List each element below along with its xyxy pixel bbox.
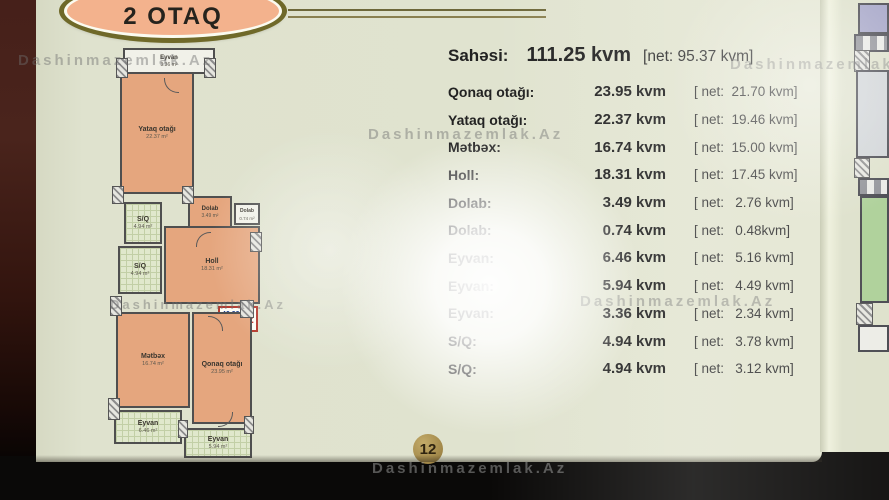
summary-label: Sahəsi: — [448, 46, 508, 66]
brochure-page: 2 OTAQ Eyvan 3.36 m² Yataq otağı 22.37 m… — [36, 0, 822, 462]
table-row: S/Q: 4.94 kvm [ net: 3.12 kvm] — [448, 355, 800, 383]
watermark: Dashinmazemlak.Az — [18, 52, 213, 69]
wall-hatch — [250, 232, 262, 252]
next-page-room — [858, 3, 889, 34]
table-row: Eyvan: 6.46 kvm [ net: 5.16 kvm] — [448, 244, 800, 272]
wall-hatch — [108, 398, 120, 420]
photo-of-brochure-page: 2 OTAQ Eyvan 3.36 m² Yataq otağı 22.37 m… — [0, 0, 889, 500]
door-arc — [218, 412, 233, 427]
next-page-wall-detail — [858, 178, 889, 196]
decorative-rule — [288, 9, 546, 11]
table-row: Dolab: 3.49 kvm [ net: 2.76 kvm] — [448, 189, 800, 217]
floorplan-room-sq-1: S/Q 4.94 m² — [124, 202, 162, 244]
summary-value: 111.25 kvm — [526, 44, 631, 67]
title-badge: 2 OTAQ — [64, 0, 282, 38]
next-page-room — [860, 196, 889, 303]
watermark: Dashinmazemlak.Az — [110, 297, 286, 312]
next-page-room — [856, 70, 889, 158]
wall-hatch — [854, 158, 870, 178]
area-table: Sahəsi: 111.25 kvm [net: 95.37 kvm] Qona… — [448, 44, 800, 383]
table-row: Qonaq otağı: 23.95 kvm [ net: 21.70 kvm] — [448, 78, 800, 106]
table-row: S/Q: 4.94 kvm [ net: 3.78 kvm] — [448, 327, 800, 355]
floorplan-room-eyvan-bottom-right: Eyvan 5.94 m² — [184, 428, 252, 458]
watermark: Dashinmazemlak.Az — [730, 56, 889, 73]
decorative-rule — [288, 16, 546, 18]
floorplan-room-sq-2: S/Q 4.94 m² — [118, 246, 162, 294]
table-row: Holl: 18.31 kvm [ net: 17.45 kvm] — [448, 161, 800, 189]
floorplan-room-dolab-1: Dolab 3.49 m² — [188, 196, 232, 228]
floorplan-room-eyvan-bottom-left: Eyvan 6.46 m² — [114, 410, 182, 444]
floorplan-room-holl: Holl 18.31 m² — [164, 226, 260, 304]
floorplan-room-yataq-otagi: Yataq otağı 22.37 m² — [120, 72, 194, 194]
floorplan-room-matbax: Mətbəx 16.74 m² — [116, 312, 190, 408]
table-row: Dolab: 0.74 kvm [ net: 0.48kvm] — [448, 216, 800, 244]
watermark: Dashinmazemlak.Az — [372, 460, 567, 477]
floorplan-room-dolab-2: Dolab 0.74 m² — [234, 203, 260, 225]
next-page-room — [858, 325, 889, 352]
page-title: 2 OTAQ — [123, 0, 223, 31]
wall-hatch — [182, 186, 194, 204]
wall-hatch — [856, 303, 873, 325]
wall-hatch — [244, 416, 254, 434]
watermark: Dashinmazemlak.Az — [368, 126, 563, 143]
watermark: Dashinmazemlak.Az — [580, 293, 775, 310]
wall-hatch — [112, 186, 124, 204]
wall-hatch — [178, 420, 188, 438]
